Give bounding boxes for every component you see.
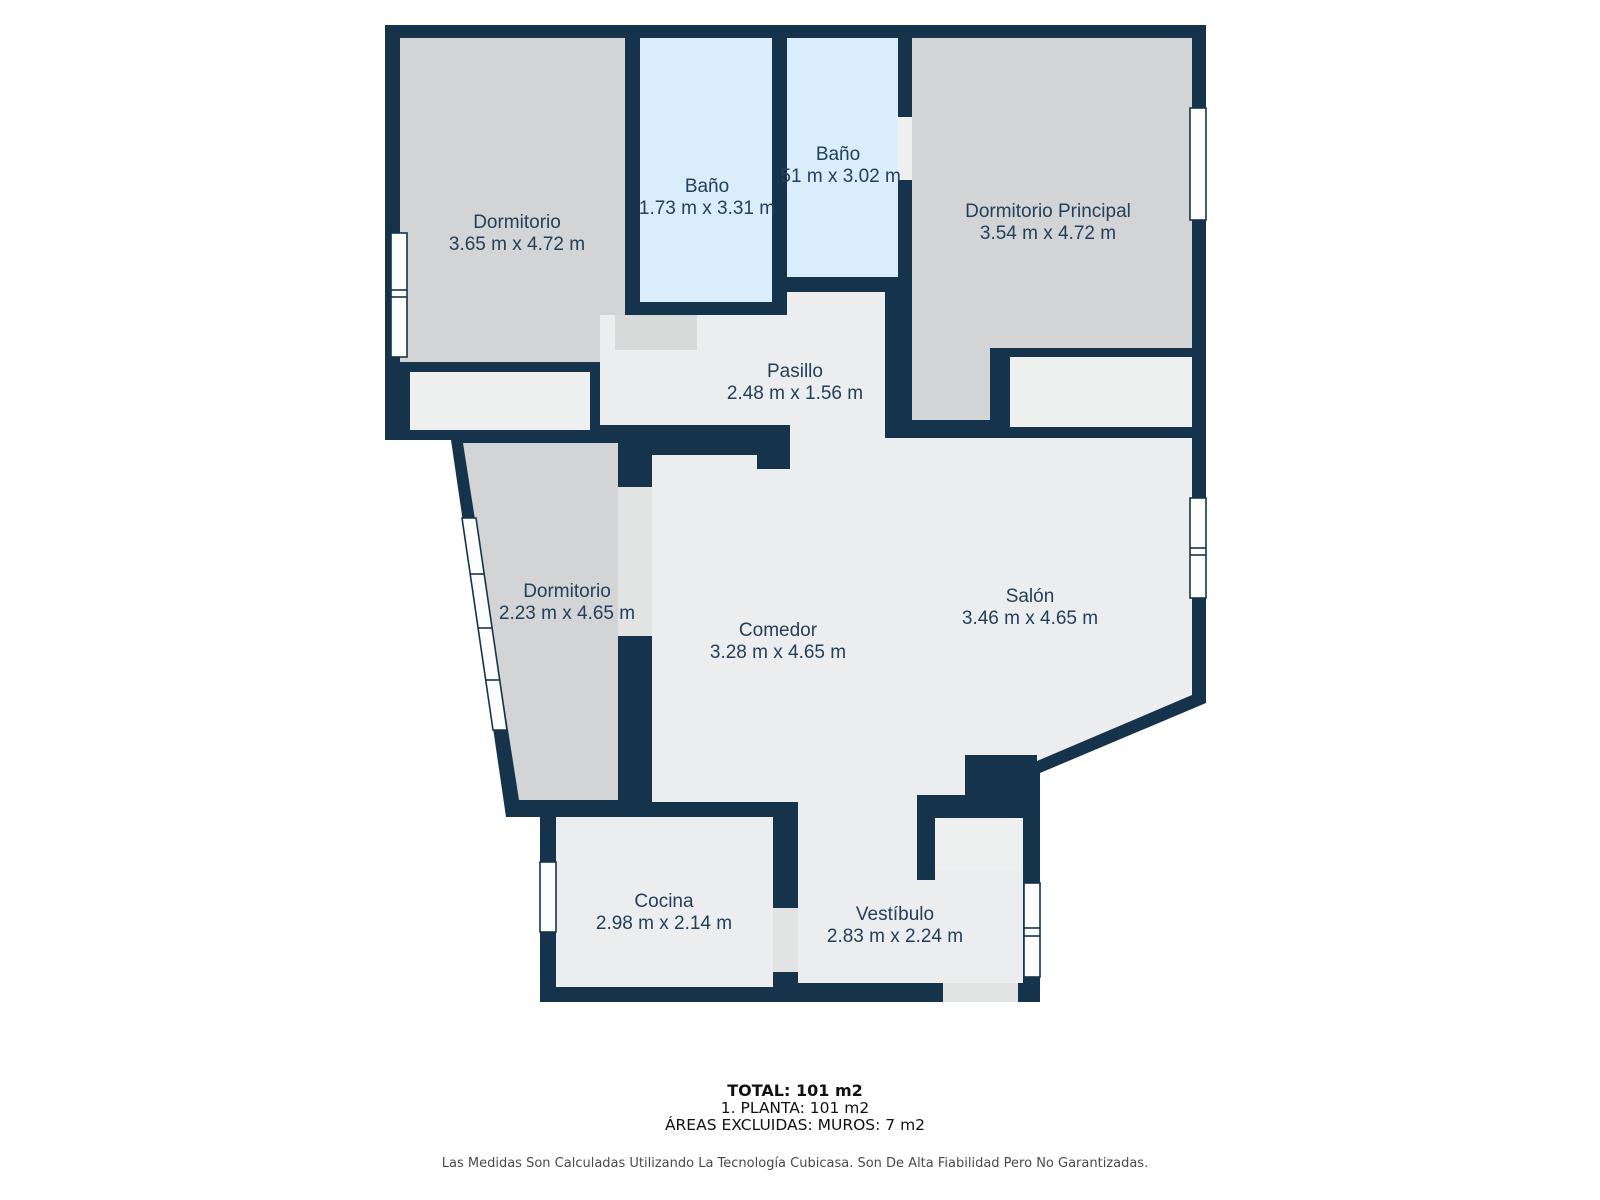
label-vestibulo-name: Vestíbulo — [856, 904, 934, 925]
wall-vestibulo-niche-left — [917, 813, 935, 880]
door-cocina-vestibulo — [773, 908, 798, 972]
closet-dormitorio-principal — [1010, 357, 1192, 427]
label-dormitorio-mid-name: Dormitorio — [523, 581, 611, 602]
label-dormitorio-top-name: Dormitorio — [473, 212, 561, 233]
label-dormitorio-mid-dims: 2.23 m x 4.65 m — [499, 603, 635, 624]
label-dormitorio-principal-name: Dormitorio Principal — [965, 201, 1131, 222]
wall-pasillo-tooth — [757, 455, 790, 469]
label-bano-1-dims: 1.73 m x 3.31 m — [639, 198, 775, 219]
floorplan-svg: Dormitorio 3.65 m x 4.72 m Baño 1.73 m x… — [0, 0, 1600, 1200]
label-vestibulo-dims: 2.83 m x 2.24 m — [827, 926, 963, 947]
door-entry-threshold — [943, 983, 1018, 1002]
label-pasillo-name: Pasillo — [767, 361, 823, 382]
closet-dormitorio-top — [410, 372, 590, 430]
room-bano-1-floor — [640, 38, 772, 302]
label-bano-1-name: Baño — [685, 176, 729, 197]
total-area-text: TOTAL: 101 m2 — [0, 1082, 1590, 1100]
label-dormitorio-top-dims: 3.65 m x 4.72 m — [449, 234, 585, 255]
wall-salon-vestibulo-chunk — [965, 755, 1037, 818]
label-pasillo-dims: 2.48 m x 1.56 m — [727, 383, 863, 404]
window-vestibulo-right — [1024, 883, 1040, 977]
floor-area-text: 1. PLANTA: 101 m2 — [0, 1100, 1590, 1117]
room-dormitorio-top-floor — [400, 38, 625, 362]
label-salon-dims: 3.46 m x 4.65 m — [962, 608, 1098, 629]
excluded-area-text: ÁREAS EXCLUIDAS: MUROS: 7 m2 — [0, 1117, 1590, 1134]
label-cocina-name: Cocina — [634, 891, 694, 912]
label-dormitorio-principal-dims: 3.54 m x 4.72 m — [980, 223, 1116, 244]
floorplan-canvas: Dormitorio 3.65 m x 4.72 m Baño 1.73 m x… — [0, 0, 1600, 1200]
label-cocina-dims: 2.98 m x 2.14 m — [596, 913, 732, 934]
label-comedor-name: Comedor — [739, 620, 818, 641]
window-cocina-left — [540, 862, 556, 932]
floorplan-page: { "rooms": [ { "id": "dormitorio-top", "… — [0, 0, 1600, 1200]
door-bano-1 — [615, 315, 697, 350]
closet-vestibulo-niche — [935, 818, 1023, 870]
window-salon-right — [1190, 498, 1206, 598]
window-dormitorio-principal-right — [1190, 108, 1206, 220]
label-comedor-dims: 3.28 m x 4.65 m — [710, 642, 846, 663]
window-dormitorio-top-left — [391, 233, 407, 357]
measurement-disclaimer-text: Las Medidas Son Calculadas Utilizando La… — [0, 1156, 1590, 1171]
label-bano-2-name: Baño — [816, 144, 860, 165]
label-salon-name: Salón — [1006, 586, 1055, 607]
plan-summary: TOTAL: 101 m2 1. PLANTA: 101 m2 ÁREAS EX… — [0, 1082, 1590, 1171]
label-bano-2-dims: .51 m x 3.02 m — [775, 166, 901, 187]
